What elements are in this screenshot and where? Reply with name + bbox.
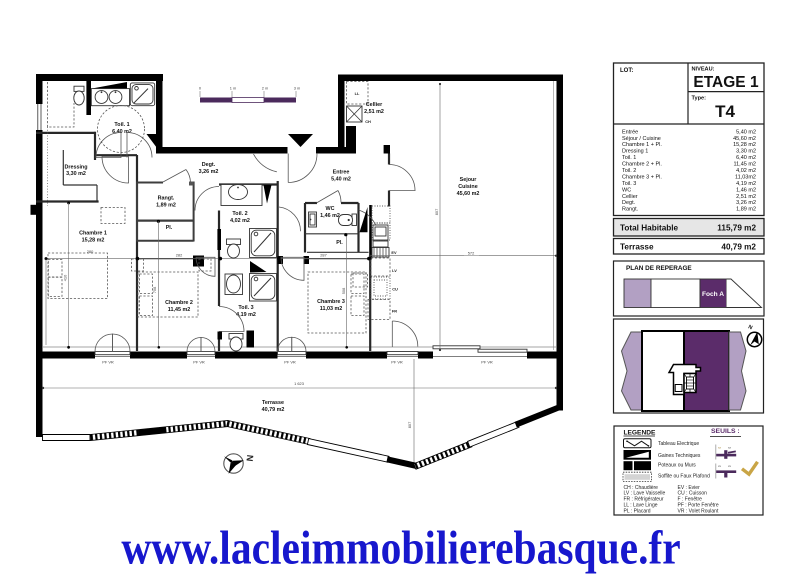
svg-text:15,28 m2: 15,28 m2 [733, 142, 756, 148]
svg-text:Chambre 1: Chambre 1 [79, 231, 107, 237]
svg-text:Pl.: Pl. [166, 225, 173, 231]
svg-text:Rangt.: Rangt. [622, 207, 639, 213]
svg-text:LV: LV [392, 268, 397, 273]
svg-text:3 m: 3 m [294, 86, 301, 91]
svg-text:N: N [244, 454, 255, 462]
svg-text:4,02 m2: 4,02 m2 [230, 218, 250, 224]
svg-text:Toil. 2: Toil. 2 [622, 168, 636, 174]
svg-text:Chambre 1 + Pl.: Chambre 1 + Pl. [622, 142, 662, 148]
svg-text:5,40 m2: 5,40 m2 [736, 129, 756, 135]
svg-text:Entrée: Entrée [622, 129, 638, 135]
svg-text:WC: WC [326, 206, 335, 212]
svg-text:3,26 m2: 3,26 m2 [199, 169, 219, 175]
svg-text:Dressing: Dressing [64, 165, 87, 171]
svg-text:PF VR: PF VR [481, 360, 493, 365]
svg-text:Tableau Electrique: Tableau Electrique [658, 441, 699, 447]
svg-text:Toil. 3: Toil. 3 [622, 181, 636, 187]
svg-text:PF VR: PF VR [102, 360, 114, 365]
svg-text:115,79 m2: 115,79 m2 [717, 224, 756, 233]
svg-text:708: 708 [152, 287, 157, 294]
svg-text:40,79 m2: 40,79 m2 [721, 243, 756, 252]
svg-text:Foch A: Foch A [702, 291, 724, 298]
svg-text:NIVEAU:: NIVEAU: [692, 67, 715, 73]
svg-text:1,46 m2: 1,46 m2 [736, 187, 756, 193]
svg-text:xx: xx [718, 464, 722, 468]
svg-text:5,40 m2: 5,40 m2 [331, 177, 351, 183]
svg-text:PF VR: PF VR [391, 360, 403, 365]
svg-text:Entree: Entree [333, 170, 350, 176]
svg-text:SEUILS :: SEUILS : [711, 428, 740, 435]
svg-text:282: 282 [176, 252, 183, 257]
svg-text:508: 508 [341, 288, 346, 295]
svg-text:40,79 m2: 40,79 m2 [262, 407, 285, 413]
svg-text:PF VR: PF VR [284, 360, 296, 365]
svg-text:CH: CH [365, 119, 371, 124]
svg-text:FR: FR [392, 309, 397, 314]
svg-text:Chambre 2 + Pl.: Chambre 2 + Pl. [622, 162, 662, 168]
svg-text:Toil. 1: Toil. 1 [114, 122, 129, 128]
svg-text:Cellier: Cellier [622, 194, 638, 200]
svg-text:1 m: 1 m [230, 86, 237, 91]
svg-text:Gaines Techniques: Gaines Techniques [658, 453, 701, 459]
svg-text:6,40 m2: 6,40 m2 [736, 155, 756, 161]
svg-text:3,30 m2: 3,30 m2 [66, 171, 86, 177]
svg-text:11,03 m2: 11,03 m2 [320, 306, 342, 312]
svg-text:3,30 m2: 3,30 m2 [736, 149, 756, 155]
svg-text:4,02 m2: 4,02 m2 [736, 168, 756, 174]
svg-text:Chambre 3 + Pl.: Chambre 3 + Pl. [622, 174, 662, 180]
svg-text:Dressing 1: Dressing 1 [622, 149, 648, 155]
svg-text:EV: EV [391, 250, 397, 255]
svg-text:PL : Placard: PL : Placard [624, 508, 651, 514]
svg-text:1 623: 1 623 [294, 381, 304, 386]
svg-text:Terrasse: Terrasse [620, 243, 654, 252]
svg-text:1,89 m2: 1,89 m2 [736, 207, 756, 213]
svg-text:Total Habitable: Total Habitable [620, 224, 679, 233]
svg-text:6,40 m2: 6,40 m2 [112, 129, 132, 135]
svg-text:572: 572 [468, 250, 475, 255]
svg-text:807: 807 [434, 209, 439, 216]
svg-text:11,45 m2: 11,45 m2 [733, 162, 756, 168]
svg-text:LEGENDE: LEGENDE [624, 430, 656, 437]
svg-text:Chambre 2: Chambre 2 [165, 300, 193, 306]
svg-text:PF VR: PF VR [193, 360, 205, 365]
svg-text:4,19 m2: 4,19 m2 [736, 181, 756, 187]
svg-text:11,03m2: 11,03m2 [735, 174, 756, 180]
svg-text:LL: LL [355, 91, 360, 96]
svg-text:Degt.: Degt. [622, 200, 636, 206]
svg-text:Toil. 3: Toil. 3 [238, 305, 253, 311]
svg-text:Soffite ou Faux Plafond: Soffite ou Faux Plafond [658, 474, 710, 480]
svg-text:Type:: Type: [692, 96, 707, 102]
svg-text:CU: CU [392, 287, 398, 292]
svg-text:280: 280 [87, 249, 94, 254]
svg-text:2,51 m2: 2,51 m2 [736, 194, 756, 200]
svg-text:2,51 m2: 2,51 m2 [364, 109, 384, 115]
svg-text:1,89 m2: 1,89 m2 [156, 203, 176, 209]
svg-text:Degt.: Degt. [202, 162, 216, 168]
svg-text:Poteaux ou Murs: Poteaux ou Murs [658, 463, 696, 469]
svg-text:1,46 m2: 1,46 m2 [320, 213, 340, 219]
svg-text:www.lacleimmobilierebasque.fr: www.lacleimmobilierebasque.fr [121, 521, 680, 575]
svg-text:15,28 m2: 15,28 m2 [82, 238, 105, 244]
svg-text:Cuisine: Cuisine [458, 184, 477, 190]
svg-text:Chambre 3: Chambre 3 [317, 299, 345, 305]
svg-text:45,60 m2: 45,60 m2 [457, 191, 480, 197]
svg-text:xx: xx [728, 464, 732, 468]
svg-text:LOT:: LOT: [620, 68, 633, 74]
svg-text:Sejour: Sejour [460, 177, 478, 183]
svg-text:VR : Volet Roulant: VR : Volet Roulant [678, 508, 719, 514]
svg-text:3,26 m2: 3,26 m2 [736, 200, 756, 206]
svg-text:PLAN DE REPERAGE: PLAN DE REPERAGE [626, 265, 692, 272]
svg-text:807: 807 [407, 422, 412, 429]
svg-text:Toil. 1: Toil. 1 [622, 155, 636, 161]
svg-text:45,60 m2: 45,60 m2 [733, 136, 756, 142]
svg-text:Toil. 2: Toil. 2 [232, 211, 247, 217]
svg-text:xx: xx [728, 446, 732, 450]
svg-text:Pl.: Pl. [336, 240, 343, 246]
svg-text:WC: WC [622, 187, 631, 193]
svg-text:T4: T4 [715, 102, 735, 121]
svg-text:2 m: 2 m [262, 86, 269, 91]
svg-text:11,45 m2: 11,45 m2 [168, 307, 190, 313]
svg-text:410: 410 [63, 274, 68, 281]
svg-text:Terrasse: Terrasse [262, 400, 284, 406]
svg-text:Rangt.: Rangt. [158, 196, 175, 202]
svg-text:ETAGE 1: ETAGE 1 [693, 74, 759, 91]
svg-text:xx: xx [718, 446, 722, 450]
svg-text:287: 287 [320, 253, 327, 258]
svg-text:Séjour / Cuisine: Séjour / Cuisine [622, 136, 661, 142]
